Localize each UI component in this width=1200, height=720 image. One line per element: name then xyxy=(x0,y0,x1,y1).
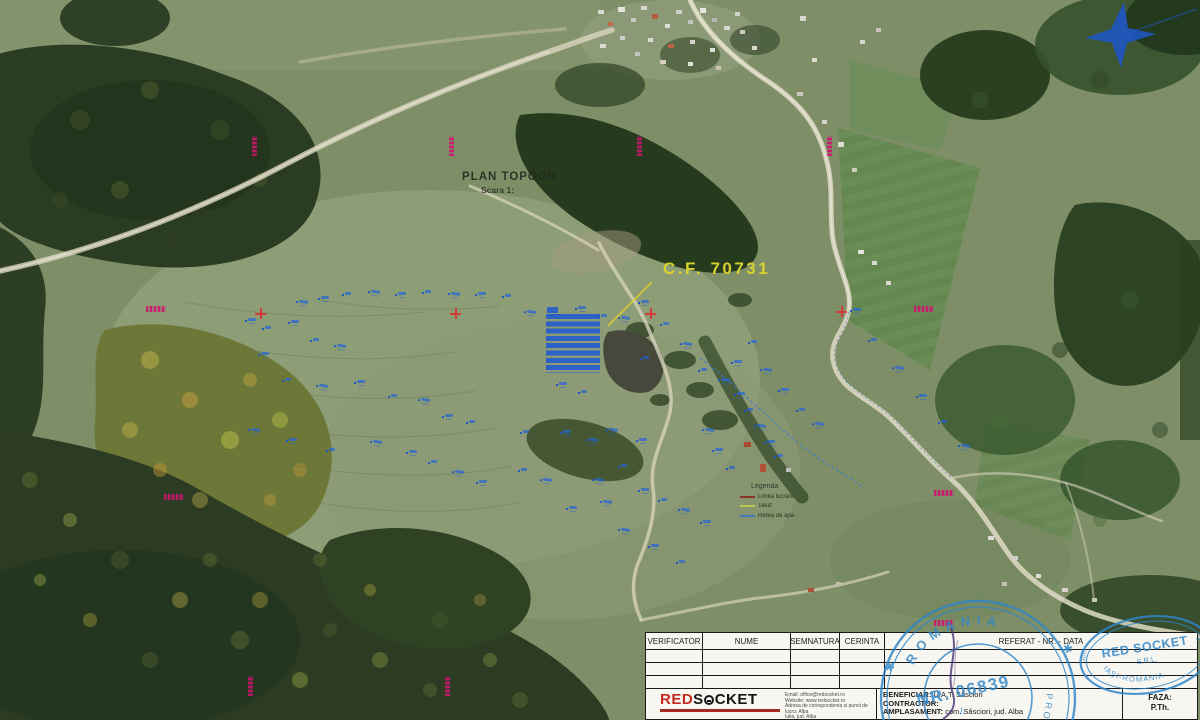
title-block-bottom-row: REDSCKET Email: office@redsocket.ro Webs… xyxy=(646,689,1197,719)
legend-swatch-red xyxy=(740,496,755,498)
legend-swatch-yellow xyxy=(740,505,755,507)
amplasament-line: AMPLASAMENT: com. Săsciori, jud. Alba xyxy=(883,708,1122,717)
topographic-plan-page: PLAN TOPOGR Scara 1: C.F. 70731 Legenda … xyxy=(0,0,1200,720)
empty-row xyxy=(646,676,1197,689)
plan-scale: Scara 1: xyxy=(481,185,514,195)
red-socket-logo: REDSCKET xyxy=(660,692,780,707)
faza-label: FAZA: xyxy=(1123,693,1197,703)
map-background xyxy=(0,0,1200,720)
project-parties-cell: BENEFICIAR: U.A.T. Săsciori CONTRACTOR: … xyxy=(877,689,1123,719)
header-semnatura: SEMNATURA xyxy=(791,633,840,649)
legend-title: Legenda xyxy=(751,483,794,490)
legend-swatch-blue xyxy=(740,515,755,517)
empty-row xyxy=(646,650,1197,663)
plan-title: PLAN TOPOGR xyxy=(462,171,557,183)
company-contacts: Email: office@redsocket.ro Website: www.… xyxy=(785,692,874,719)
logo-underline-bar xyxy=(660,709,780,712)
legend-item: Limita lucrare xyxy=(740,494,794,500)
legend-item: Retea de apa xyxy=(740,513,794,519)
legend-item: Taluz xyxy=(740,503,794,509)
header-verificator: VERIFICATOR xyxy=(646,633,703,649)
header-referat: REFERAT - NR. - DATA xyxy=(885,633,1197,649)
socket-icon xyxy=(704,695,714,705)
faza-cell: FAZA: P.Th. xyxy=(1123,689,1197,719)
solar-panel-array xyxy=(546,314,600,373)
legend-label: Taluz xyxy=(758,503,772,509)
header-cerinta: CERINTA xyxy=(840,633,885,649)
empty-row xyxy=(646,663,1197,676)
header-nume: NUME xyxy=(703,633,791,649)
legend-label: Limita lucrare xyxy=(758,494,794,500)
legend-label: Retea de apa xyxy=(758,513,794,519)
title-block: VERIFICATOR NUME SEMNATURA CERINTA REFER… xyxy=(645,632,1198,720)
map-legend: Legenda Limita lucrare Taluz Retea de ap… xyxy=(740,483,794,519)
faza-value: P.Th. xyxy=(1123,703,1197,713)
title-block-header-row: VERIFICATOR NUME SEMNATURA CERINTA REFER… xyxy=(646,633,1197,650)
company-cell: REDSCKET Email: office@redsocket.ro Webs… xyxy=(646,689,877,719)
cf-parcel-label: C.F. 70731 xyxy=(663,259,770,279)
